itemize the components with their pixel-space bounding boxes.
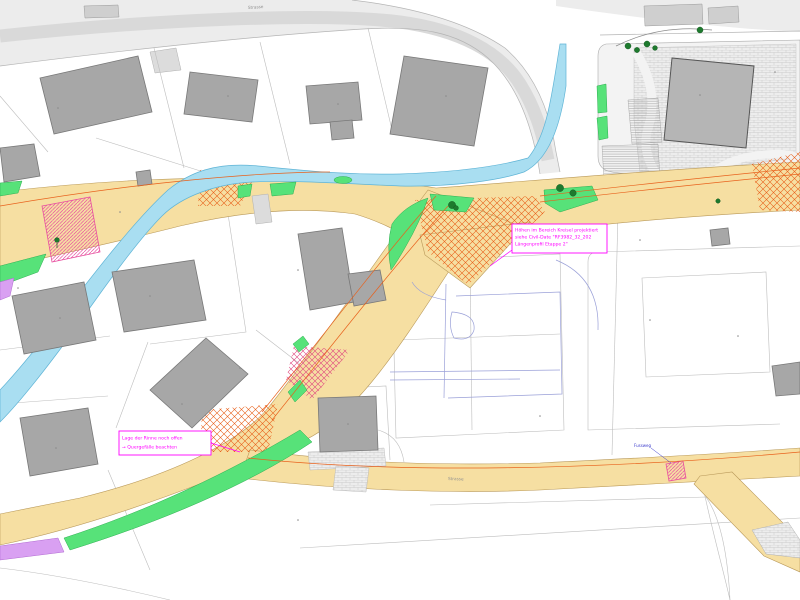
green-verge bbox=[334, 177, 352, 184]
footpath-label: Fussweg bbox=[634, 443, 652, 448]
shrub-icon bbox=[634, 47, 639, 52]
platform bbox=[84, 5, 119, 18]
green-verge bbox=[597, 84, 607, 113]
note-kreisel-line3: Längenprofil Etappe 2" bbox=[515, 242, 568, 248]
platform bbox=[644, 4, 703, 26]
site-plan-canvas[interactable]: Strasse Strasse Höhen im Bereich Kreisel… bbox=[0, 0, 800, 600]
green-verge bbox=[270, 182, 296, 196]
building bbox=[0, 144, 40, 182]
building bbox=[330, 120, 354, 140]
street-label-bottom: Strasse bbox=[448, 476, 464, 481]
shed bbox=[710, 228, 730, 246]
note-kreisel-line2: siehe Civil-Date "RF3982_32_202 bbox=[515, 235, 591, 241]
tree-icon bbox=[454, 206, 459, 211]
paved-crossing bbox=[333, 466, 369, 492]
shed bbox=[136, 170, 152, 186]
building bbox=[306, 82, 362, 124]
note-rinne-line2: → Quergefälle beachten bbox=[122, 445, 177, 451]
building bbox=[112, 260, 206, 332]
crossing-east bbox=[666, 461, 686, 481]
building bbox=[390, 56, 488, 146]
hatch-junction-south bbox=[200, 404, 278, 452]
building bbox=[40, 56, 152, 134]
building bbox=[20, 408, 98, 476]
note-kreisel-line1: Höhen im Bereich Kreisel projektiert bbox=[515, 228, 598, 234]
note-rinne-line1: Lage der Rinne noch offen bbox=[122, 436, 183, 442]
building bbox=[348, 270, 386, 306]
tree-icon bbox=[716, 199, 720, 203]
shrub-icon bbox=[653, 46, 658, 51]
shrub-icon bbox=[625, 43, 631, 49]
road-branch bbox=[694, 472, 800, 572]
building bbox=[298, 228, 354, 310]
tree-icon bbox=[570, 190, 576, 196]
shrub-icon bbox=[697, 27, 703, 33]
shrub-icon bbox=[644, 41, 650, 47]
green-verge bbox=[238, 184, 252, 198]
green-verge bbox=[597, 116, 608, 140]
building-hall bbox=[664, 58, 754, 148]
site-plan-viewport: Strasse Strasse Höhen im Bereich Kreisel… bbox=[0, 0, 800, 600]
platform bbox=[708, 6, 739, 24]
building bbox=[772, 362, 800, 396]
stairs bbox=[628, 98, 662, 144]
building bbox=[184, 72, 258, 122]
building bbox=[12, 282, 96, 354]
crossing-west bbox=[42, 197, 100, 262]
tree-icon bbox=[556, 184, 563, 191]
